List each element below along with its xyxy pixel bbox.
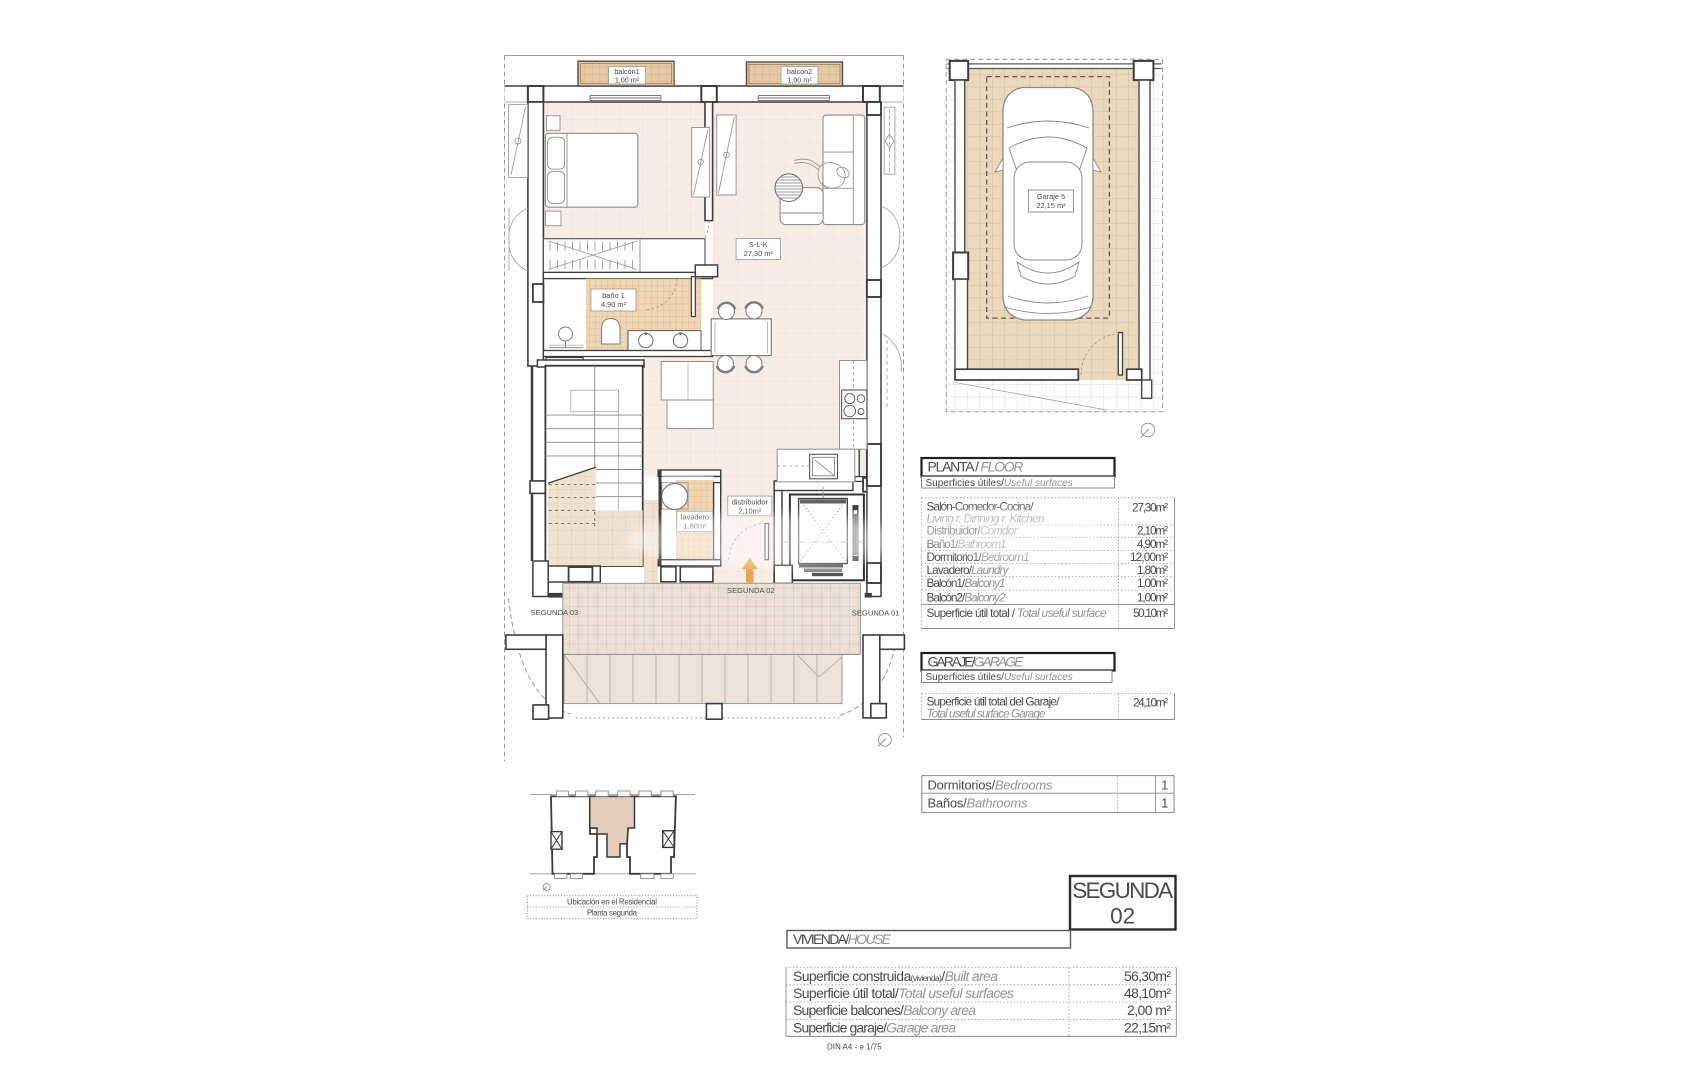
svg-text:Superficie útil total/Total us: Superficie útil total/Total useful surfa…	[793, 985, 1014, 1001]
svg-text:Balcón1/Balcony1: Balcón1/Balcony1	[927, 576, 1006, 590]
svg-text:Balcón2/Balcony2: Balcón2/Balcony2	[927, 590, 1006, 604]
svg-text:GARAJE/GARAGE: GARAJE/GARAGE	[928, 653, 1025, 669]
svg-text:Superficie construida(vivienda: Superficie construida(vivienda)/Built ar…	[793, 968, 998, 984]
svg-text:4,90 m²: 4,90 m²	[601, 300, 627, 309]
svg-text:2,10m²: 2,10m²	[1137, 524, 1168, 538]
svg-text:1: 1	[1161, 795, 1168, 810]
svg-text:Lavadero/Laundry: Lavadero/Laundry	[927, 563, 1010, 577]
svg-text:1: 1	[1161, 777, 1168, 792]
svg-text:2,00 m²: 2,00 m²	[1127, 1002, 1171, 1018]
svg-text:PLANTA / FLOOR: PLANTA / FLOOR	[928, 459, 1024, 475]
svg-text:Baños/Bathrooms: Baños/Bathrooms	[928, 795, 1029, 810]
svg-text:Garaje 5: Garaje 5	[1037, 192, 1065, 201]
svg-text:DIN A4 - e 1/75: DIN A4 - e 1/75	[827, 1043, 882, 1052]
svg-text:baño 1: baño 1	[602, 291, 625, 300]
svg-text:1,00m²: 1,00m²	[1137, 590, 1168, 604]
svg-text:4,90m²: 4,90m²	[1137, 537, 1168, 551]
svg-text:SEGUNDA 01: SEGUNDA 01	[852, 609, 900, 618]
svg-text:56,30m²: 56,30m²	[1124, 968, 1171, 984]
svg-text:27,30m²: 27,30m²	[1132, 501, 1168, 515]
svg-text:SEGUNDA 03: SEGUNDA 03	[531, 608, 579, 617]
svg-text:1,00m²: 1,00m²	[1137, 576, 1168, 590]
svg-text:1,00 m²: 1,00 m²	[787, 75, 812, 84]
svg-text:50,10m²: 50,10m²	[1133, 606, 1168, 620]
svg-text:02: 02	[1110, 904, 1135, 929]
svg-text:Superficies útiles/Useful surf: Superficies útiles/Useful surfaces	[926, 672, 1073, 683]
svg-text:SEGUNDA: SEGUNDA	[1072, 878, 1173, 903]
svg-text:VIVIENDA/HOUSE: VIVIENDA/HOUSE	[793, 931, 892, 947]
svg-text:48,10m²: 48,10m²	[1124, 985, 1171, 1001]
svg-text:Dormitorios/Bedrooms: Dormitorios/Bedrooms	[928, 777, 1054, 792]
svg-text:Ubicación en el Residencial: Ubicación en el Residencial	[567, 897, 657, 906]
svg-text:Superficie garaje/Garage area: Superficie garaje/Garage area	[793, 1019, 956, 1035]
svg-text:Superficies útiles/Useful surf: Superficies útiles/Useful surfaces	[926, 478, 1073, 489]
svg-text:Total useful surface Garage: Total useful surface Garage	[927, 707, 1046, 721]
svg-text:24,10m²: 24,10m²	[1133, 695, 1168, 709]
svg-text:Superficie balcones/Balcony ar: Superficie balcones/Balcony area	[793, 1002, 976, 1018]
svg-text:distribuidor: distribuidor	[732, 497, 769, 506]
svg-text:1,80m²: 1,80m²	[1137, 563, 1168, 577]
svg-text:22,15 m²: 22,15 m²	[1036, 201, 1066, 210]
svg-text:SEGUNDA 02: SEGUNDA 02	[727, 586, 775, 595]
svg-text:S-L-K: S-L-K	[749, 240, 768, 249]
svg-text:1,00 m²: 1,00 m²	[615, 75, 640, 84]
svg-text:Superficie útil total / Total: Superficie útil total / Total useful sur…	[927, 606, 1107, 620]
svg-text:12,00m²: 12,00m²	[1130, 550, 1168, 564]
svg-text:Planta segunda: Planta segunda	[587, 909, 638, 918]
svg-text:22,15m²: 22,15m²	[1124, 1019, 1171, 1035]
svg-text:27,30 m²: 27,30 m²	[744, 249, 774, 258]
